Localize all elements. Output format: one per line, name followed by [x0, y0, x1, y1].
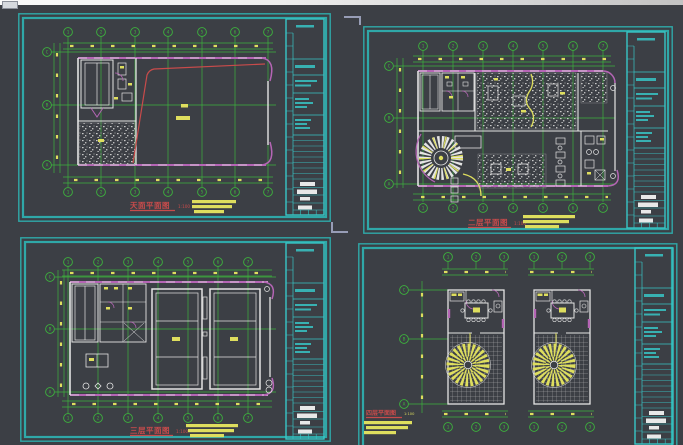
svg-text:4: 4 [157, 260, 160, 266]
drawing-title: 二层平面图 1:100 [468, 215, 575, 228]
grid-bubbles-left: CBA [400, 286, 409, 409]
svg-text:2: 2 [452, 206, 455, 212]
svg-text:5: 5 [187, 260, 190, 266]
svg-text:1: 1 [533, 425, 536, 431]
svg-text:A: A [49, 390, 52, 396]
svg-text:4: 4 [512, 206, 515, 212]
svg-text:5: 5 [542, 206, 545, 212]
grid-bubbles-unit2-bottom: 123 [530, 423, 595, 432]
viewport-corner-tab [2, 1, 18, 9]
svg-text:1: 1 [447, 425, 450, 431]
svg-text:5: 5 [201, 190, 204, 196]
sheet-outer-border [364, 27, 672, 233]
svg-text:2: 2 [475, 425, 478, 431]
svg-text:C: C [403, 288, 406, 294]
roof-label [176, 104, 190, 120]
top-light-strip [0, 0, 683, 5]
grid-bubbles-top: 1234567 [64, 258, 253, 267]
svg-text:1: 1 [67, 190, 70, 196]
grid-bubbles-left: CBA [43, 48, 52, 170]
grid-bubbles-left: CBA [46, 273, 55, 397]
gravel-hatch-area [79, 123, 135, 164]
svg-text:7: 7 [602, 206, 605, 212]
svg-text:3: 3 [589, 255, 592, 261]
drawing-title: 天面平面图 1:100 [130, 200, 236, 213]
svg-text:7: 7 [247, 416, 250, 422]
grid-bubbles-left: CBA [385, 62, 394, 189]
svg-text:2: 2 [100, 30, 103, 36]
roof-plan-drawing: 1234567 1234567 CBA 天面平面图 1:100 [18, 13, 331, 222]
layout-corner-mark [344, 16, 361, 25]
cad-canvas[interactable]: 1234567 1234567 CBA 天面平面图 1:100 [0, 0, 683, 445]
svg-text:4: 4 [157, 416, 160, 422]
svg-text:A: A [388, 182, 391, 188]
grid-bubbles-unit2-top: 123 [530, 253, 595, 262]
ktv-unit-right [532, 290, 591, 404]
title-block [627, 32, 665, 228]
grid-bubbles-bottom: 1234567 [64, 414, 253, 423]
svg-text:2: 2 [452, 44, 455, 50]
svg-text:4: 4 [167, 190, 170, 196]
sheet-title-text: 二层平面图 [468, 218, 508, 227]
left-axis [408, 281, 448, 413]
svg-text:6: 6 [234, 190, 237, 196]
svg-text:B: B [46, 103, 49, 109]
sheet-inner-border [368, 31, 668, 229]
svg-text:3: 3 [482, 44, 485, 50]
drawing-title: 三层平面图 1:100 [130, 424, 238, 437]
svg-text:A: A [46, 163, 49, 169]
title-block [635, 248, 673, 444]
grid-bubbles-top: 1234567 [419, 42, 608, 51]
svg-text:A: A [403, 402, 406, 408]
booth-desks [556, 138, 565, 186]
title-block [286, 243, 324, 439]
svg-text:6: 6 [217, 416, 220, 422]
svg-text:1: 1 [533, 255, 536, 261]
roof-fixtures [114, 63, 132, 101]
svg-text:3: 3 [589, 425, 592, 431]
svg-text:B: B [403, 337, 406, 343]
sheet-scale-text: 1:100 [178, 204, 190, 209]
svg-text:2: 2 [561, 425, 564, 431]
svg-text:1: 1 [447, 255, 450, 261]
fourth-floor-drawing: 123 123 123 123 CBA 四层平面图 1:100 [358, 243, 678, 445]
stairwell [72, 284, 98, 342]
svg-text:1: 1 [67, 30, 70, 36]
svg-text:3: 3 [134, 190, 137, 196]
svg-text:6: 6 [217, 260, 220, 266]
svg-text:7: 7 [267, 30, 270, 36]
svg-text:3: 3 [127, 260, 130, 266]
sheet-fourth-floor-plan[interactable]: 123 123 123 123 CBA 四层平面图 1:100 [358, 243, 678, 445]
svg-text:3: 3 [134, 30, 137, 36]
svg-text:4: 4 [512, 44, 515, 50]
svg-text:2: 2 [97, 416, 100, 422]
second-floor-drawing: 1234567 1234567 CBA 二层平面图 1:100 [363, 26, 673, 234]
sheet-scale-text: 1:100 [404, 412, 415, 416]
hall-left [152, 289, 202, 389]
svg-text:3: 3 [482, 206, 485, 212]
sheet-title-text: 四层平面图 [366, 409, 396, 417]
roof-edge-outline [133, 64, 265, 163]
title-block [286, 19, 324, 215]
third-floor-drawing: 1234567 1234567 CBA 三层平面图 1:100 [20, 237, 331, 445]
svg-text:2: 2 [561, 255, 564, 261]
table-group [478, 154, 546, 188]
svg-text:1: 1 [67, 260, 70, 266]
svg-text:3: 3 [127, 416, 130, 422]
svg-text:4: 4 [167, 30, 170, 36]
svg-text:5: 5 [201, 30, 204, 36]
drawing-title: 四层平面图 1:100 [364, 409, 415, 434]
layout-corner-mark [331, 222, 348, 233]
svg-text:1: 1 [422, 206, 425, 212]
svg-text:3: 3 [503, 425, 506, 431]
svg-text:6: 6 [234, 30, 237, 36]
svg-text:6: 6 [572, 44, 575, 50]
svg-text:7: 7 [602, 44, 605, 50]
svg-text:7: 7 [267, 190, 270, 196]
sheet-title-text: 天面平面图 [130, 201, 170, 210]
svg-text:C: C [46, 50, 49, 56]
grid-bubbles-bottom: 1234567 [419, 204, 608, 213]
grid-bubbles-unit1-bottom: 123 [444, 423, 509, 432]
sheet-title-text: 三层平面图 [130, 426, 170, 435]
grid-bubbles-unit1-top: 123 [444, 253, 509, 262]
grid-bubbles-bottom: 1234567 [64, 188, 273, 197]
kitchen [581, 131, 605, 186]
bench-seats [451, 178, 458, 202]
sheet-third-floor-plan[interactable]: 1234567 1234567 CBA 三层平面图 1:100 [20, 237, 331, 445]
hall-right [210, 289, 260, 389]
svg-text:2: 2 [475, 255, 478, 261]
building-walls [70, 282, 273, 395]
svg-text:C: C [49, 275, 52, 281]
svg-text:B: B [49, 327, 52, 333]
svg-text:7: 7 [247, 260, 250, 266]
svg-text:6: 6 [572, 206, 575, 212]
sheet-roof-plan[interactable]: 1234567 1234567 CBA 天面平面图 1:100 [18, 13, 331, 222]
dining-area-hatch [477, 73, 607, 129]
svg-text:5: 5 [187, 416, 190, 422]
svg-text:C: C [388, 64, 391, 70]
restrooms [442, 73, 474, 111]
ktv-unit-left [446, 290, 505, 404]
svg-text:B: B [388, 116, 391, 122]
sheet-inner-border [23, 18, 326, 217]
svg-text:2: 2 [100, 190, 103, 196]
grid-bubbles-top: 1234567 [64, 28, 273, 37]
svg-text:5: 5 [542, 44, 545, 50]
svg-text:2: 2 [97, 260, 100, 266]
svg-text:1: 1 [67, 416, 70, 422]
svg-text:3: 3 [503, 255, 506, 261]
sheet-second-floor-plan[interactable]: 1234567 1234567 CBA 二层平面图 1:100 [363, 26, 673, 234]
corridor [203, 297, 207, 379]
stairwell [81, 60, 113, 117]
restrooms [100, 284, 146, 342]
dimension-lines [58, 270, 272, 407]
svg-text:1: 1 [422, 44, 425, 50]
sheet-scale-text: 1:100 [176, 429, 188, 434]
